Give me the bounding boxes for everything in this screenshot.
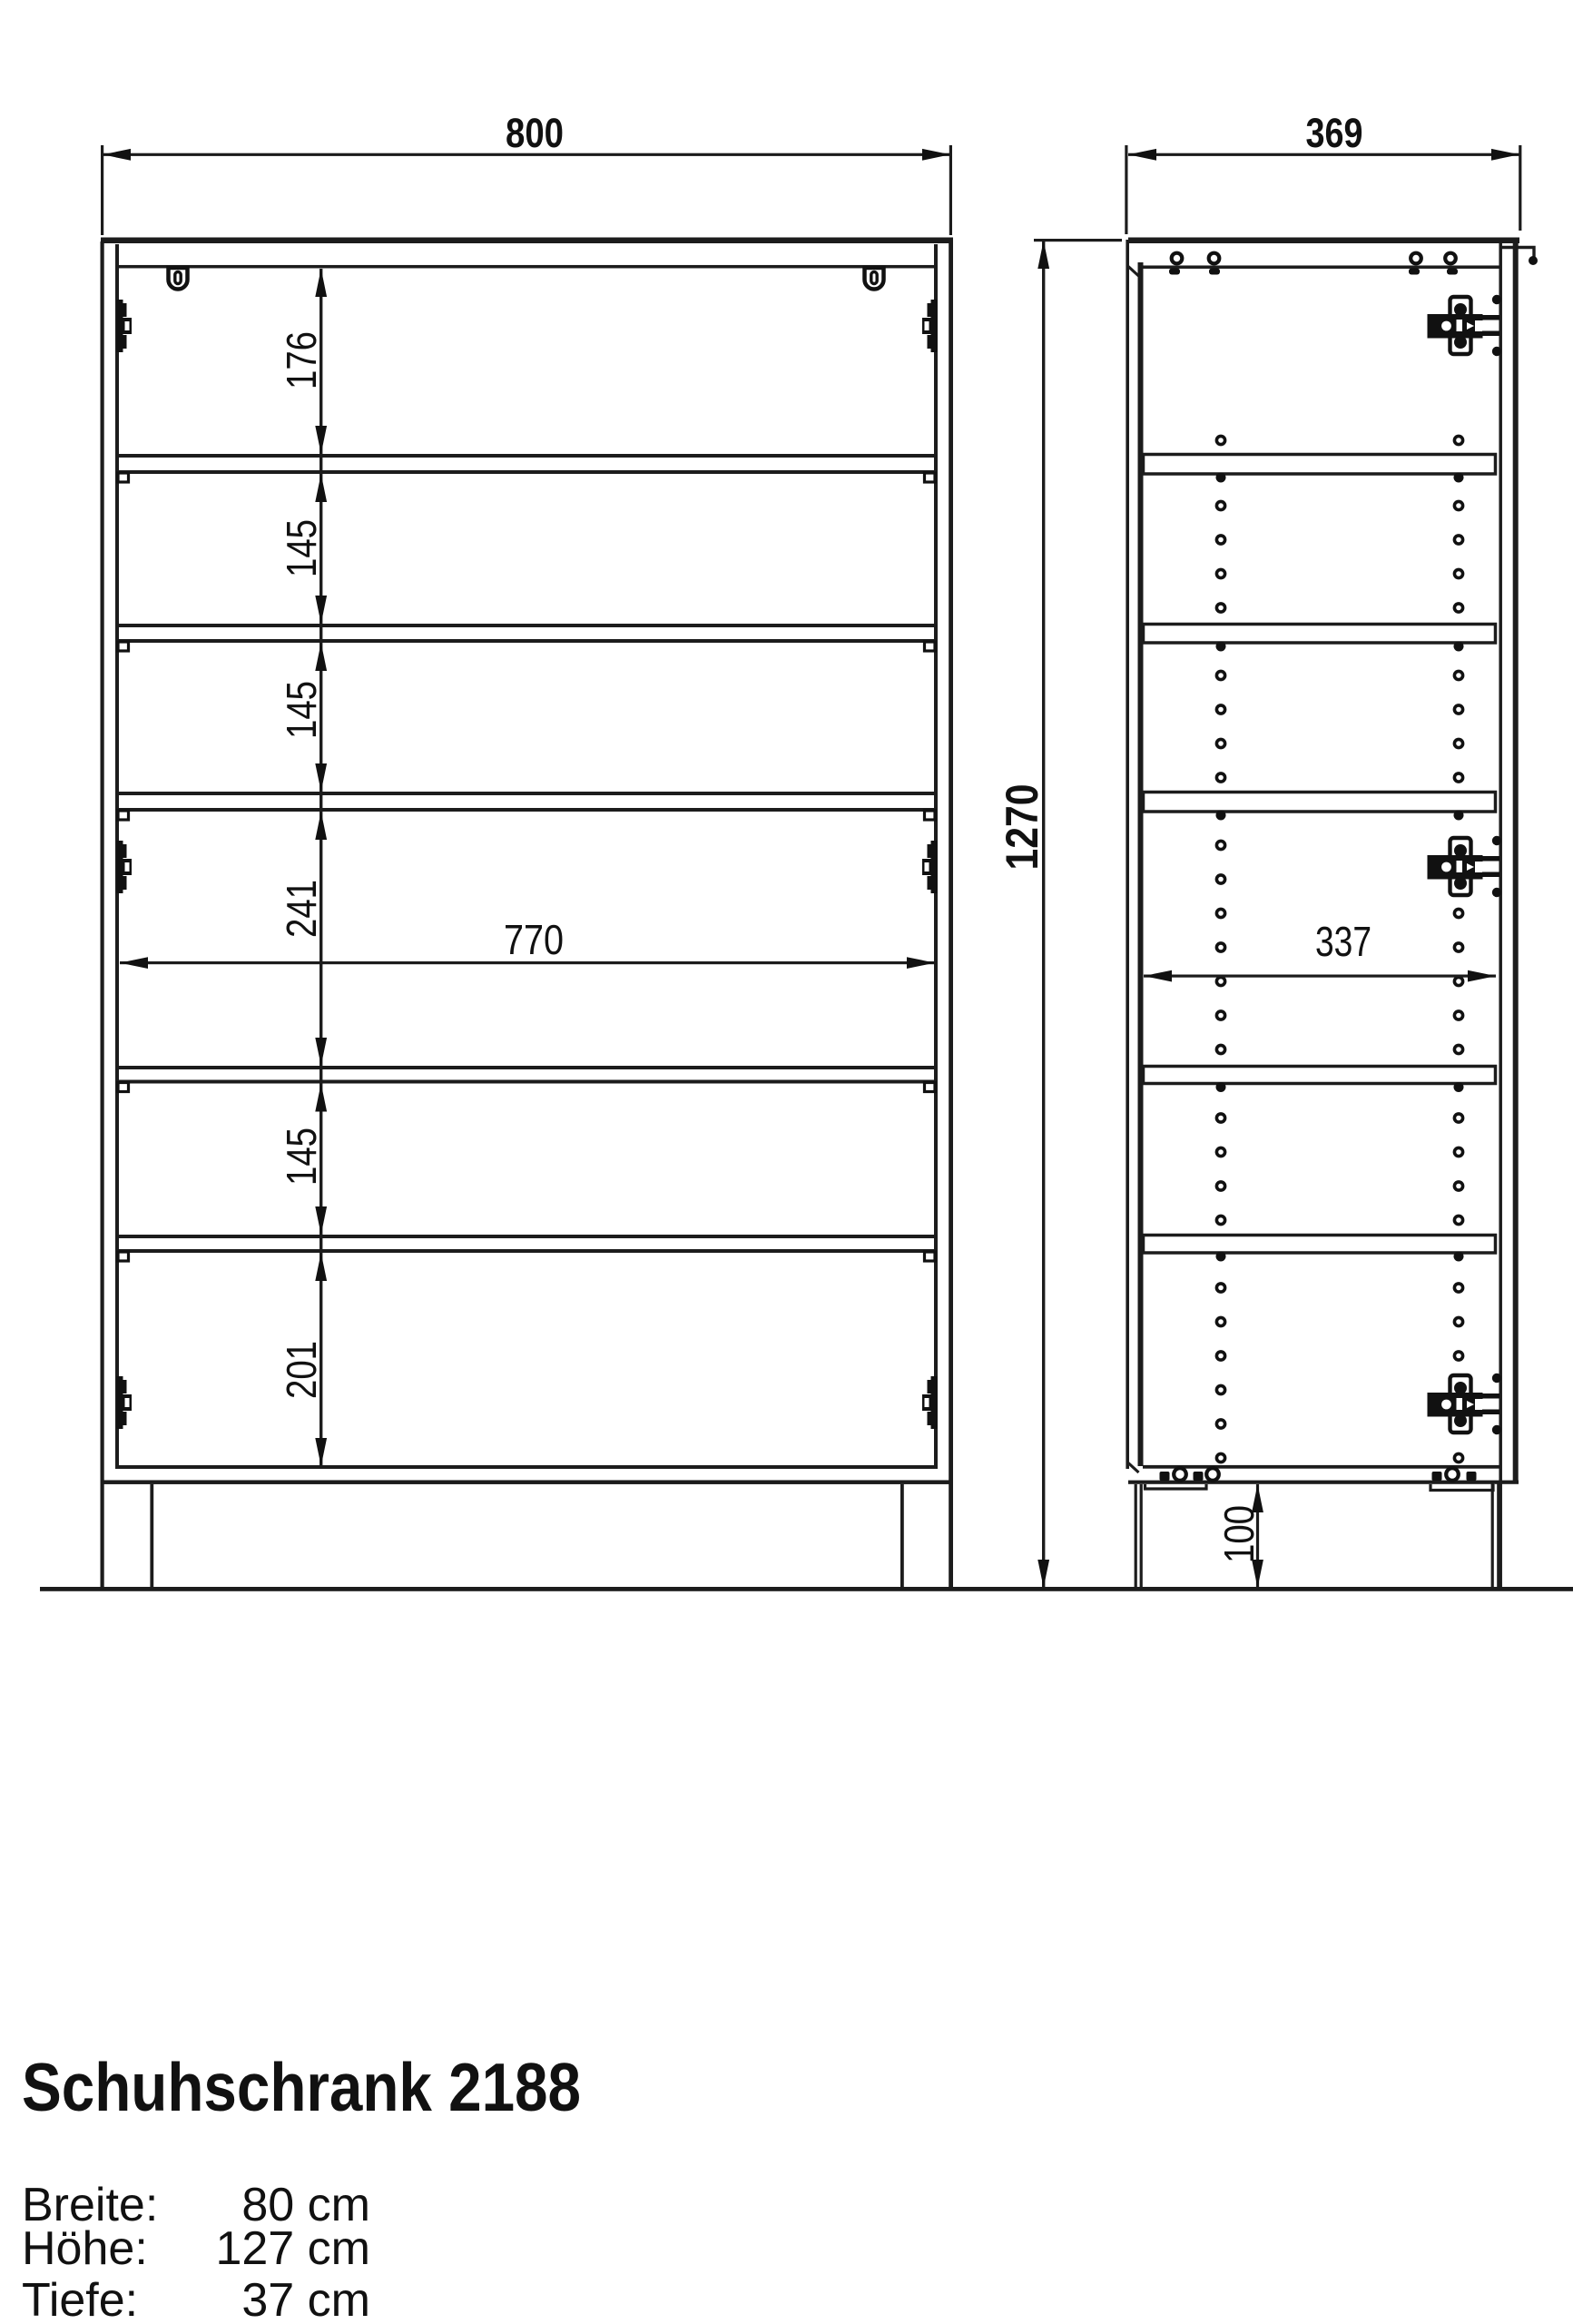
- svg-text:337: 337: [1315, 918, 1371, 965]
- svg-text:145: 145: [278, 1128, 325, 1186]
- svg-text:127 cm: 127 cm: [215, 2222, 370, 2275]
- svg-text:800: 800: [506, 110, 564, 156]
- svg-text:145: 145: [278, 681, 325, 739]
- svg-text:Höhe:: Höhe:: [22, 2222, 148, 2275]
- svg-text:241: 241: [278, 880, 325, 938]
- svg-text:145: 145: [278, 519, 325, 577]
- svg-text:201: 201: [278, 1341, 325, 1399]
- svg-text:37 cm: 37 cm: [241, 2274, 370, 2324]
- svg-text:100: 100: [1215, 1505, 1263, 1563]
- svg-text:Schuhschrank 2188: Schuhschrank 2188: [22, 2049, 581, 2125]
- svg-text:770: 770: [504, 916, 564, 963]
- svg-text:Tiefe:: Tiefe:: [22, 2274, 138, 2324]
- svg-text:369: 369: [1306, 110, 1363, 156]
- svg-text:176: 176: [278, 331, 325, 389]
- svg-text:1270: 1270: [997, 784, 1047, 871]
